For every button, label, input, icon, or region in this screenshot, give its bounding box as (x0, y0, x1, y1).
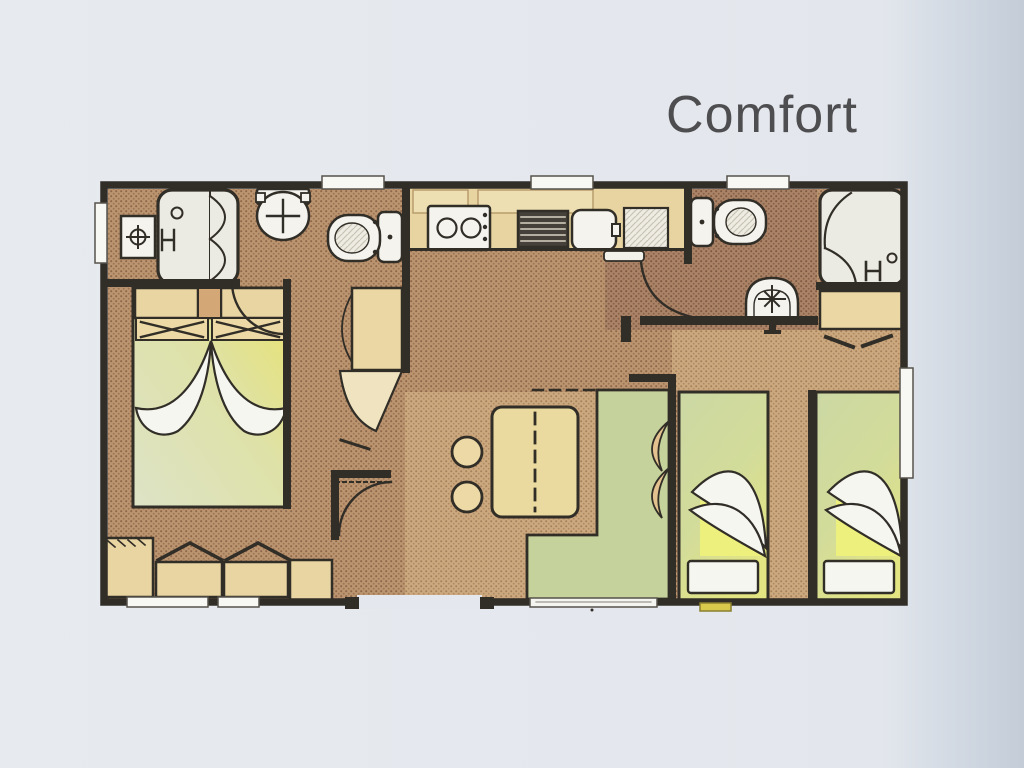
pillow (824, 561, 894, 593)
kitchen-sink-icon (572, 210, 616, 250)
shower-cabin-left (158, 190, 238, 284)
wall-washbasin-left (256, 189, 310, 240)
counter-appliance (604, 251, 644, 261)
single-bed-left (679, 392, 768, 600)
floor-twin-aisle (764, 392, 812, 598)
floor-plan (95, 176, 913, 612)
window-top-2 (531, 176, 593, 189)
window-left (95, 203, 107, 263)
headboard-center (199, 289, 220, 317)
pillow (688, 561, 758, 593)
entrance-opening (345, 595, 494, 609)
window-bottom-1 (127, 597, 208, 607)
sink-tap (612, 224, 620, 236)
toilet-right-icon (691, 198, 766, 246)
stool (452, 482, 482, 512)
page-title: Comfort (666, 86, 858, 144)
drainer-icon (624, 208, 668, 248)
corner-cabinet (105, 538, 153, 597)
window-top-1 (322, 176, 384, 189)
hob-knob (483, 237, 487, 241)
toilet-left-icon (328, 212, 402, 262)
hob-burner-right (462, 219, 481, 238)
shower-drain (172, 208, 183, 219)
scanned-page: Comfort (0, 0, 1024, 768)
wc-left (328, 212, 402, 262)
stool (452, 437, 482, 467)
hob-knob (483, 213, 487, 217)
single-bed-right (816, 392, 904, 600)
window-right (900, 368, 913, 478)
window-bottom-2 (218, 597, 259, 607)
shower-cabin-right (820, 190, 904, 285)
floor-corridor-right (672, 330, 901, 392)
floor-plan-drawing: Comfort (0, 0, 1024, 768)
window-top-3 (727, 176, 789, 189)
sliding-window-bench (530, 598, 657, 612)
hob-knob (483, 225, 487, 229)
vanity-basin-unit (121, 216, 155, 258)
tall-cabinet-fridge (342, 288, 402, 370)
kitchen-wall-cabinet-2 (478, 190, 593, 213)
hob-burner-left (438, 219, 457, 238)
grill-icon (518, 211, 568, 247)
entry-step (700, 603, 731, 611)
